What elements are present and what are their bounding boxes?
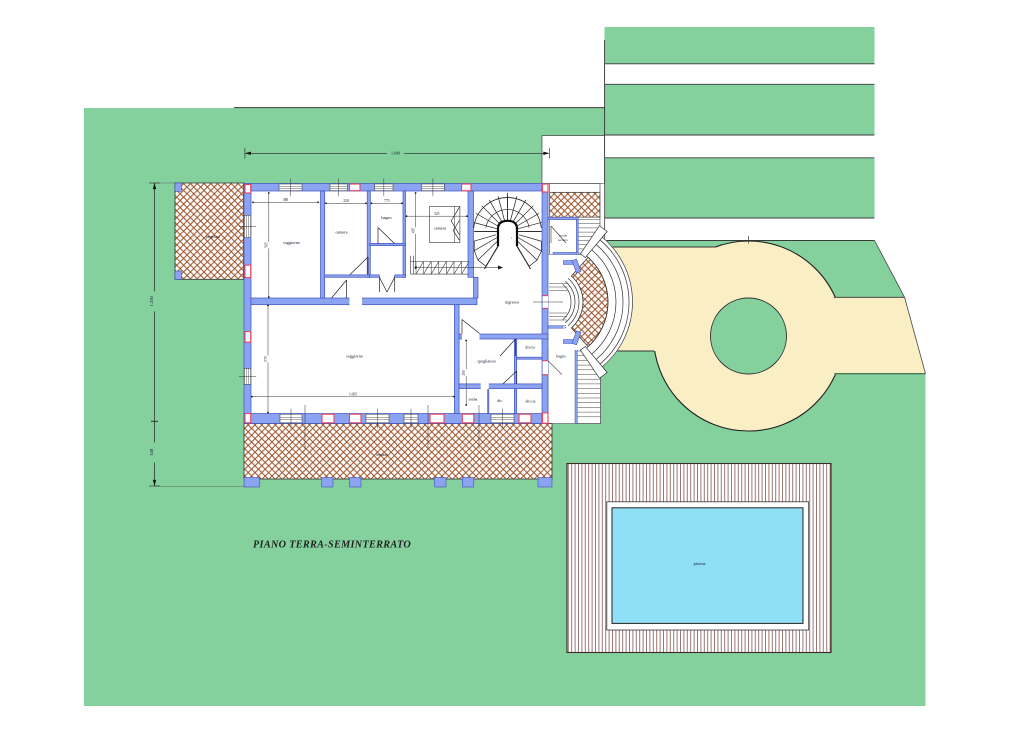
svg-text:bagno: bagno xyxy=(556,355,565,359)
svg-text:565: 565 xyxy=(265,242,269,248)
svg-text:PIANO TERRA-SEMINTERRATO: PIANO TERRA-SEMINTERRATO xyxy=(253,540,411,551)
svg-text:camera: camera xyxy=(434,226,446,231)
svg-text:piscina: piscina xyxy=(694,561,706,566)
svg-text:r: r xyxy=(512,237,513,240)
svg-text:ingresso: ingresso xyxy=(505,300,519,305)
svg-text:1.600: 1.600 xyxy=(391,151,400,156)
svg-text:spogliatoio: spogliatoio xyxy=(477,359,496,364)
svg-text:380: 380 xyxy=(283,198,289,202)
svg-text:terrazza: terrazza xyxy=(376,453,388,457)
svg-text:220: 220 xyxy=(343,199,349,203)
svg-text:sauna: sauna xyxy=(469,398,478,402)
svg-text:dis.: dis. xyxy=(497,399,502,403)
svg-text:soggiorno: soggiorno xyxy=(283,240,300,245)
svg-text:doccia: doccia xyxy=(525,346,535,350)
svg-text:570: 570 xyxy=(264,356,268,362)
svg-text:340: 340 xyxy=(149,448,154,456)
svg-text:soggiorno: soggiorno xyxy=(346,354,363,359)
svg-text:bagno: bagno xyxy=(381,215,391,220)
svg-text:1.250: 1.250 xyxy=(149,296,154,307)
svg-text:405: 405 xyxy=(411,228,415,234)
svg-text:camera: camera xyxy=(335,230,347,235)
svg-text:325: 325 xyxy=(434,212,440,216)
svg-text:doccia: doccia xyxy=(526,400,536,404)
svg-text:295: 295 xyxy=(462,370,466,376)
svg-text:1.065: 1.065 xyxy=(349,392,357,396)
svg-text:775: 775 xyxy=(384,199,390,203)
svg-text:pergolato: pergolato xyxy=(206,235,220,239)
